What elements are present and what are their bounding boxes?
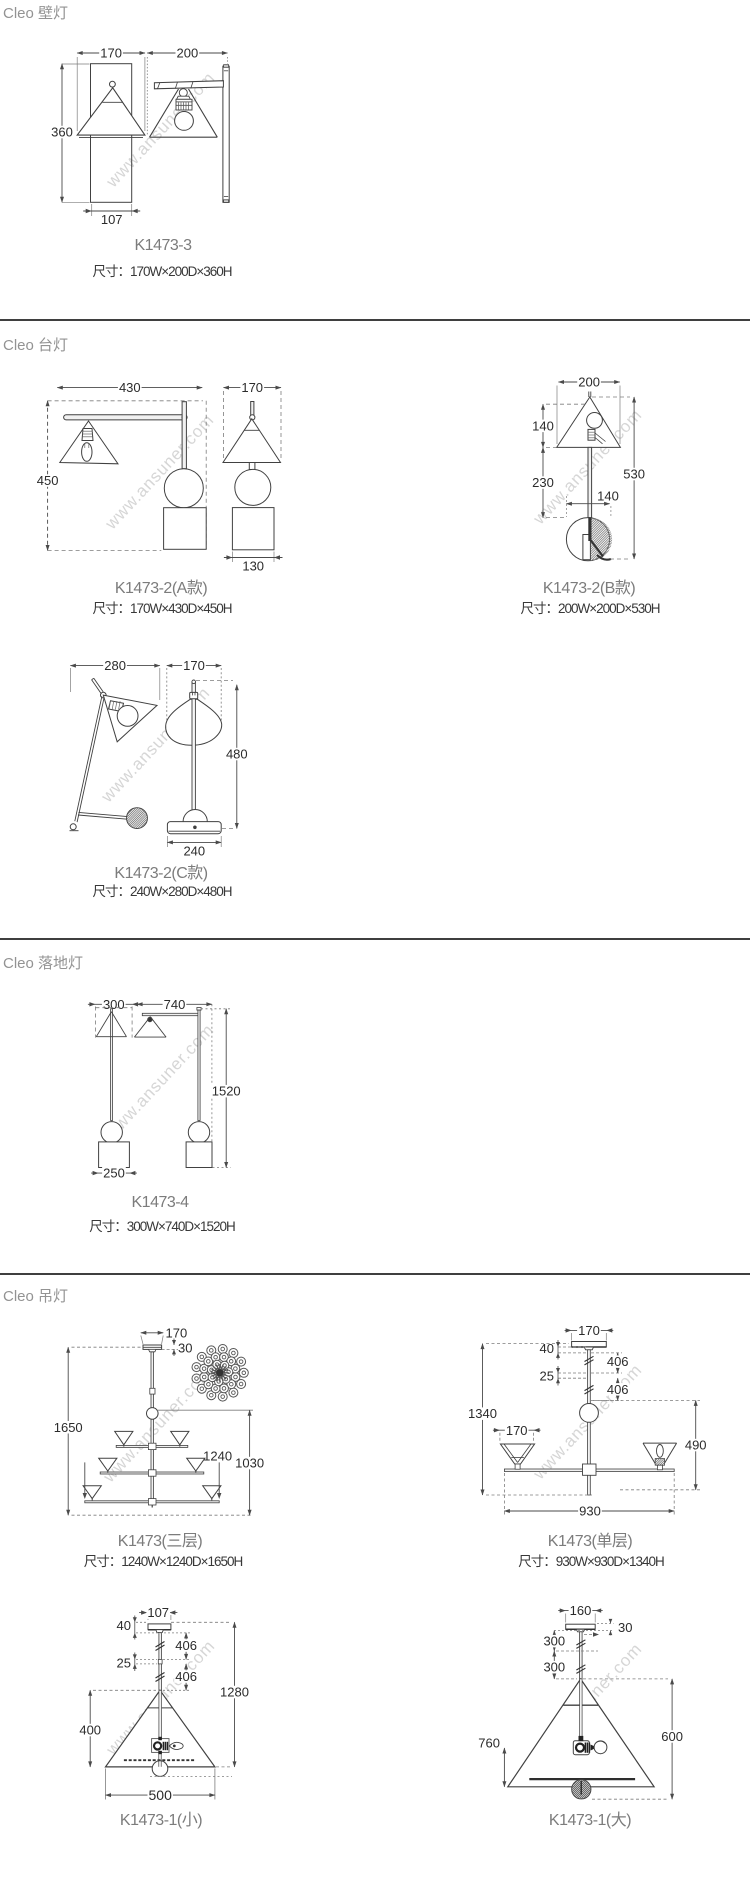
svg-text:40: 40 [540, 1341, 554, 1356]
svg-text:300: 300 [543, 1660, 565, 1675]
svg-text:240: 240 [183, 844, 205, 859]
svg-text:450: 450 [37, 473, 59, 488]
svg-text:280: 280 [104, 658, 126, 673]
svg-text:1650: 1650 [54, 1420, 83, 1435]
svg-text:300: 300 [103, 997, 125, 1012]
svg-text:930: 930 [579, 1504, 601, 1519]
svg-text:480: 480 [226, 747, 248, 762]
svg-text:107: 107 [147, 1605, 169, 1620]
svg-text:406: 406 [175, 1669, 197, 1684]
svg-text:40: 40 [117, 1618, 131, 1633]
svg-text:430: 430 [119, 380, 141, 395]
svg-text:530: 530 [623, 467, 645, 482]
svg-text:1030: 1030 [235, 1456, 264, 1471]
svg-text:360: 360 [51, 125, 73, 140]
svg-text:170: 170 [241, 380, 263, 395]
svg-text:740: 740 [164, 997, 186, 1012]
svg-text:1280: 1280 [220, 1685, 249, 1700]
svg-text:170: 170 [578, 1323, 600, 1338]
svg-text:230: 230 [532, 475, 554, 490]
svg-text:1240: 1240 [203, 1449, 232, 1464]
svg-text:170: 170 [166, 1325, 188, 1340]
svg-text:200: 200 [177, 46, 199, 61]
svg-text:170: 170 [183, 658, 205, 673]
svg-text:250: 250 [103, 1166, 125, 1181]
svg-text:200: 200 [578, 375, 600, 390]
svg-text:300: 300 [543, 1634, 565, 1649]
svg-text:130: 130 [242, 559, 264, 574]
svg-text:490: 490 [685, 1438, 707, 1453]
svg-text:600: 600 [661, 1729, 683, 1744]
svg-text:107: 107 [101, 212, 123, 227]
svg-text:1340: 1340 [468, 1406, 497, 1421]
svg-text:170: 170 [506, 1423, 528, 1438]
svg-text:406: 406 [607, 1354, 629, 1369]
svg-text:400: 400 [79, 1723, 101, 1738]
svg-text:160: 160 [570, 1603, 592, 1618]
svg-text:760: 760 [478, 1736, 500, 1751]
svg-text:170: 170 [100, 46, 122, 61]
svg-text:1520: 1520 [212, 1084, 241, 1099]
svg-text:30: 30 [618, 1620, 632, 1635]
svg-text:140: 140 [532, 418, 554, 433]
svg-text:25: 25 [117, 1656, 131, 1671]
svg-text:406: 406 [607, 1382, 629, 1397]
svg-text:30: 30 [178, 1341, 192, 1356]
svg-text:140: 140 [597, 488, 619, 503]
svg-text:500: 500 [149, 1787, 173, 1803]
svg-text:25: 25 [540, 1369, 554, 1384]
svg-text:406: 406 [175, 1638, 197, 1653]
